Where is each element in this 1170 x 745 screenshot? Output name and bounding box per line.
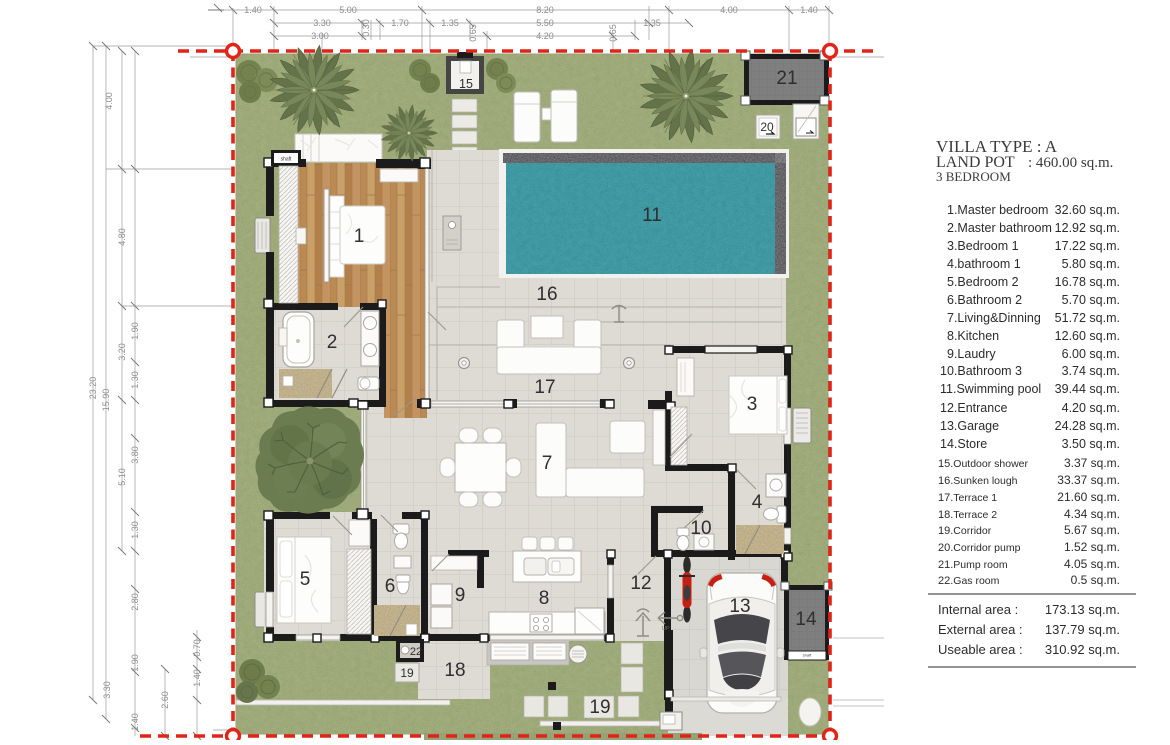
svg-text:310.92 sq.m.: 310.92 sq.m. — [1045, 642, 1120, 657]
svg-text:9.Laudry: 9.Laudry — [947, 347, 996, 361]
svg-text:173.13 sq.m.: 173.13 sq.m. — [1045, 602, 1120, 617]
svg-text:10: 10 — [690, 518, 711, 539]
svg-text:3.80: 3.80 — [130, 446, 140, 464]
svg-text:1: 1 — [354, 226, 365, 247]
svg-text:12.92 sq.m.: 12.92 sq.m. — [1055, 221, 1120, 235]
svg-text:20.Corridor pump: 20.Corridor pump — [938, 542, 1021, 554]
svg-text:1.52 sq.m.: 1.52 sq.m. — [1064, 540, 1120, 554]
svg-text:16.Sunken lough: 16.Sunken lough — [938, 475, 1018, 487]
svg-text:3.30: 3.30 — [102, 681, 112, 699]
svg-text:39.44 sq.m.: 39.44 sq.m. — [1055, 382, 1120, 396]
svg-text:12.Entrance: 12.Entrance — [940, 401, 1007, 415]
svg-text:15.Outdoor shower: 15.Outdoor shower — [938, 458, 1029, 470]
svg-text:21.60 sq.m.: 21.60 sq.m. — [1057, 490, 1120, 504]
svg-text:2: 2 — [327, 332, 338, 353]
svg-text:1.70: 1.70 — [391, 18, 409, 28]
svg-text:0.30: 0.30 — [361, 19, 371, 37]
svg-text:UP: UP — [662, 626, 670, 632]
svg-text:9: 9 — [455, 585, 466, 606]
svg-text:32.60 sq.m.: 32.60 sq.m. — [1055, 203, 1120, 217]
svg-text:19.Corridor: 19.Corridor — [938, 525, 992, 537]
svg-text:Useable area :: Useable area : — [938, 642, 1023, 657]
svg-text:5.00: 5.00 — [339, 5, 357, 15]
svg-text:19: 19 — [400, 666, 414, 680]
svg-text:5.67 sq.m.: 5.67 sq.m. — [1064, 523, 1120, 537]
svg-text:0.65: 0.65 — [608, 24, 618, 42]
svg-text:3.37 sq.m.: 3.37 sq.m. — [1064, 456, 1120, 470]
svg-text:24.28 sq.m.: 24.28 sq.m. — [1055, 419, 1120, 433]
svg-text:shaft: shaft — [281, 157, 292, 163]
svg-text:3.50 sq.m.: 3.50 sq.m. — [1062, 437, 1120, 451]
svg-text:4.34 sq.m.: 4.34 sq.m. — [1064, 507, 1120, 521]
svg-text:4.20: 4.20 — [536, 31, 554, 41]
svg-text:23.20: 23.20 — [88, 377, 98, 400]
svg-text:12: 12 — [630, 573, 651, 594]
svg-text:1.40: 1.40 — [192, 669, 202, 687]
svg-text:6.00 sq.m.: 6.00 sq.m. — [1062, 347, 1120, 361]
svg-text:External area :: External area : — [938, 622, 1023, 637]
svg-text:3 BEDROOM: 3 BEDROOM — [936, 169, 1011, 184]
svg-text:6: 6 — [385, 576, 396, 597]
svg-text:16.78 sq.m.: 16.78 sq.m. — [1055, 275, 1120, 289]
svg-text:3.74 sq.m.: 3.74 sq.m. — [1062, 364, 1120, 378]
svg-text:22: 22 — [410, 646, 422, 658]
svg-text:7: 7 — [542, 453, 553, 474]
svg-text:2.80: 2.80 — [130, 593, 140, 611]
svg-text:19: 19 — [589, 697, 610, 718]
svg-text:7.Living&Dinning: 7.Living&Dinning — [947, 311, 1041, 325]
svg-text:13: 13 — [729, 596, 750, 617]
svg-text:1.30: 1.30 — [130, 371, 140, 389]
svg-text:14.Store: 14.Store — [940, 437, 987, 451]
svg-text:5: 5 — [300, 569, 311, 590]
svg-text:11.Swimming pool: 11.Swimming pool — [940, 382, 1041, 396]
svg-text:51.72 sq.m.: 51.72 sq.m. — [1055, 311, 1120, 325]
svg-text:17: 17 — [534, 377, 555, 398]
svg-text:8.Kitchen: 8.Kitchen — [947, 329, 999, 343]
svg-text:shaft: shaft — [803, 653, 813, 658]
svg-text:5.70 sq.m.: 5.70 sq.m. — [1062, 293, 1120, 307]
svg-text:1.90: 1.90 — [130, 322, 140, 340]
svg-text:4.00: 4.00 — [720, 5, 738, 15]
svg-text:1.40: 1.40 — [800, 5, 818, 15]
svg-text:17.22 sq.m.: 17.22 sq.m. — [1055, 239, 1120, 253]
svg-text:2.Master bathroom: 2.Master bathroom — [947, 221, 1052, 235]
svg-text:0.70: 0.70 — [192, 639, 202, 657]
svg-text:1.35: 1.35 — [643, 18, 661, 28]
svg-text:18: 18 — [444, 660, 465, 681]
svg-text:10.Bathroom 3: 10.Bathroom 3 — [940, 364, 1022, 378]
svg-text:8.20: 8.20 — [536, 5, 554, 15]
svg-text:5.80 sq.m.: 5.80 sq.m. — [1062, 257, 1120, 271]
svg-text:2.60: 2.60 — [160, 691, 170, 709]
svg-text:1.Master bedroom: 1.Master bedroom — [947, 203, 1048, 217]
svg-text:33.37 sq.m.: 33.37 sq.m. — [1057, 473, 1120, 487]
svg-text:17.Terrace 1: 17.Terrace 1 — [938, 492, 997, 504]
svg-text:4.00: 4.00 — [104, 92, 114, 110]
svg-text:5.50: 5.50 — [536, 18, 554, 28]
svg-text:1.90: 1.90 — [130, 654, 140, 672]
svg-text:0.5 sq.m.: 0.5 sq.m. — [1071, 573, 1120, 587]
svg-text:11: 11 — [642, 205, 662, 226]
svg-text:1.35: 1.35 — [441, 18, 459, 28]
svg-text:16: 16 — [536, 284, 557, 305]
svg-text:4.05 sq.m.: 4.05 sq.m. — [1064, 557, 1120, 571]
svg-text:3.Bedroom 1: 3.Bedroom 1 — [947, 239, 1019, 253]
svg-text:13.Garage: 13.Garage — [940, 419, 999, 433]
svg-text:137.79 sq.m.: 137.79 sq.m. — [1045, 622, 1120, 637]
svg-text:4.bathroom 1: 4.bathroom 1 — [947, 257, 1021, 271]
svg-text:14: 14 — [795, 609, 817, 630]
svg-text:4.20 sq.m.: 4.20 sq.m. — [1062, 401, 1120, 415]
svg-text:1.30: 1.30 — [130, 521, 140, 539]
svg-text:6.Bathroom 2: 6.Bathroom 2 — [947, 293, 1022, 307]
svg-text:1.40: 1.40 — [130, 713, 140, 731]
svg-text:12.60 sq.m.: 12.60 sq.m. — [1055, 329, 1120, 343]
svg-text:0.65: 0.65 — [468, 24, 478, 42]
svg-text:5.Bedroom 2: 5.Bedroom 2 — [947, 275, 1019, 289]
svg-text:21: 21 — [776, 68, 797, 89]
svg-text:21.Pump room: 21.Pump room — [938, 559, 1008, 571]
svg-text:3.30: 3.30 — [313, 18, 331, 28]
svg-text:15.90: 15.90 — [101, 389, 111, 412]
svg-text:22.Gas room: 22.Gas room — [938, 575, 1000, 587]
svg-text:5.10: 5.10 — [117, 468, 127, 486]
svg-text:Internal area :: Internal area : — [938, 602, 1018, 617]
svg-text:: 460.00 sq.m.: : 460.00 sq.m. — [1028, 155, 1113, 171]
svg-text:4.80: 4.80 — [117, 228, 127, 246]
svg-text:3.20: 3.20 — [117, 343, 127, 361]
svg-text:3.00: 3.00 — [311, 31, 329, 41]
svg-text:8: 8 — [539, 588, 550, 609]
svg-text:1.40: 1.40 — [244, 5, 262, 15]
svg-text:18.Terrace 2: 18.Terrace 2 — [938, 509, 997, 521]
svg-text:15: 15 — [459, 77, 473, 91]
svg-text:3: 3 — [747, 394, 758, 415]
svg-text:4: 4 — [752, 492, 763, 513]
